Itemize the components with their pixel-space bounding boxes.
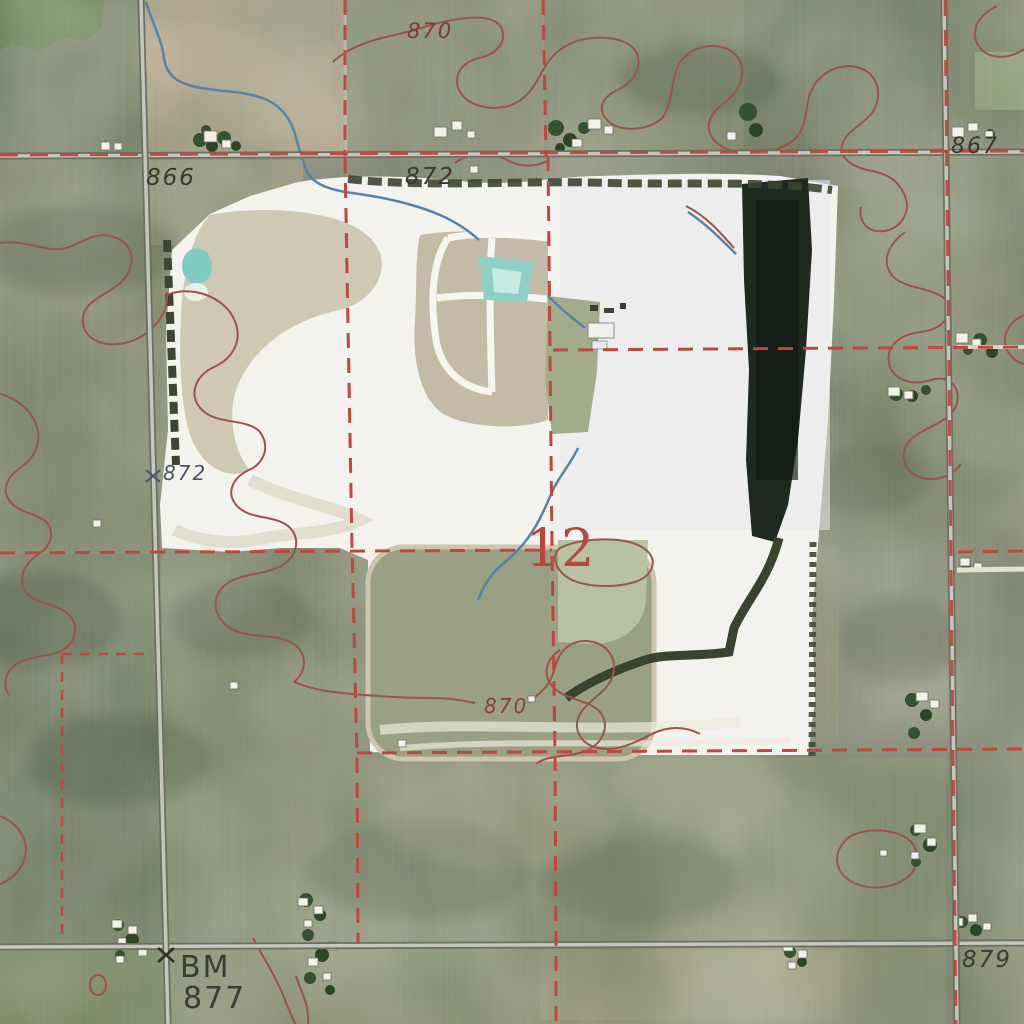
tree-clump xyxy=(908,727,920,739)
building xyxy=(116,956,124,963)
building xyxy=(101,142,110,150)
building xyxy=(930,700,939,708)
building xyxy=(528,696,535,702)
tree-clump xyxy=(920,709,932,721)
building xyxy=(888,387,900,396)
building xyxy=(914,824,926,833)
cloud-shadow xyxy=(30,715,210,805)
spot-elevation-872-top: 872 xyxy=(405,164,455,190)
driveway-east xyxy=(957,569,1024,570)
building xyxy=(93,520,101,527)
building xyxy=(983,923,991,930)
tree-clump xyxy=(302,929,314,941)
tree-clump xyxy=(797,957,807,967)
building xyxy=(927,838,936,846)
tree-clump xyxy=(921,385,931,395)
building xyxy=(572,139,582,147)
building xyxy=(452,121,462,130)
building xyxy=(323,973,331,980)
cloud-shadow xyxy=(620,45,780,115)
settling-pond-teal-inner xyxy=(492,268,522,294)
tree-clump xyxy=(325,985,335,995)
map-viewport[interactable]: 87086687286787212870BM877879 xyxy=(0,0,1024,1024)
section-line xyxy=(958,551,1024,552)
building xyxy=(904,391,913,399)
building xyxy=(727,132,736,140)
tree-clump xyxy=(304,972,316,984)
building xyxy=(880,850,887,856)
plant-building-2 xyxy=(592,341,607,349)
spot-elevation-866: 866 xyxy=(146,165,196,191)
building xyxy=(467,131,475,138)
cloud-shadow xyxy=(840,595,960,685)
cloud-shadow xyxy=(170,580,310,660)
plant-machinery xyxy=(620,303,626,309)
light-patch xyxy=(380,770,620,870)
building xyxy=(128,926,137,934)
building xyxy=(314,906,323,914)
building xyxy=(230,682,238,689)
building xyxy=(434,127,447,137)
building xyxy=(470,166,478,173)
plant-machinery xyxy=(590,305,598,311)
spot-elevation-872-x: 872 xyxy=(163,461,207,485)
building xyxy=(298,898,308,906)
topo-map-canvas: 87086687286787212870BM877879 xyxy=(0,0,1024,1024)
tree-clump xyxy=(970,924,982,936)
plant-machinery xyxy=(604,308,614,313)
plant-building xyxy=(588,323,614,338)
building xyxy=(398,740,406,747)
building xyxy=(222,140,231,148)
building xyxy=(798,950,807,958)
light-patch xyxy=(140,25,280,95)
light-patch xyxy=(610,750,790,830)
building xyxy=(304,920,312,927)
contour-label-870-top: 870 xyxy=(407,19,453,43)
building xyxy=(588,119,601,129)
building xyxy=(916,692,928,701)
building xyxy=(604,126,613,134)
contour-label-870-bottom: 870 xyxy=(484,694,528,718)
building xyxy=(968,914,977,922)
building xyxy=(788,962,796,969)
benchmark-bm: BM xyxy=(180,950,230,985)
spot-elevation-867: 867 xyxy=(951,134,999,159)
spot-elevation-879: 879 xyxy=(962,947,1012,973)
building xyxy=(114,143,122,150)
tree-clump xyxy=(749,123,763,137)
tree-clump xyxy=(739,103,757,121)
pond-west-teal xyxy=(182,248,212,284)
building xyxy=(112,920,122,928)
tree-clump xyxy=(231,141,241,151)
section-number-12: 12 xyxy=(526,519,596,579)
building xyxy=(308,958,318,966)
building xyxy=(968,123,978,131)
building xyxy=(960,558,970,566)
tree-clump xyxy=(548,120,564,136)
building xyxy=(911,852,919,859)
benchmark-877: 877 xyxy=(183,981,246,1016)
building xyxy=(956,333,968,343)
deep-pit-core xyxy=(756,200,798,480)
building xyxy=(204,131,217,142)
